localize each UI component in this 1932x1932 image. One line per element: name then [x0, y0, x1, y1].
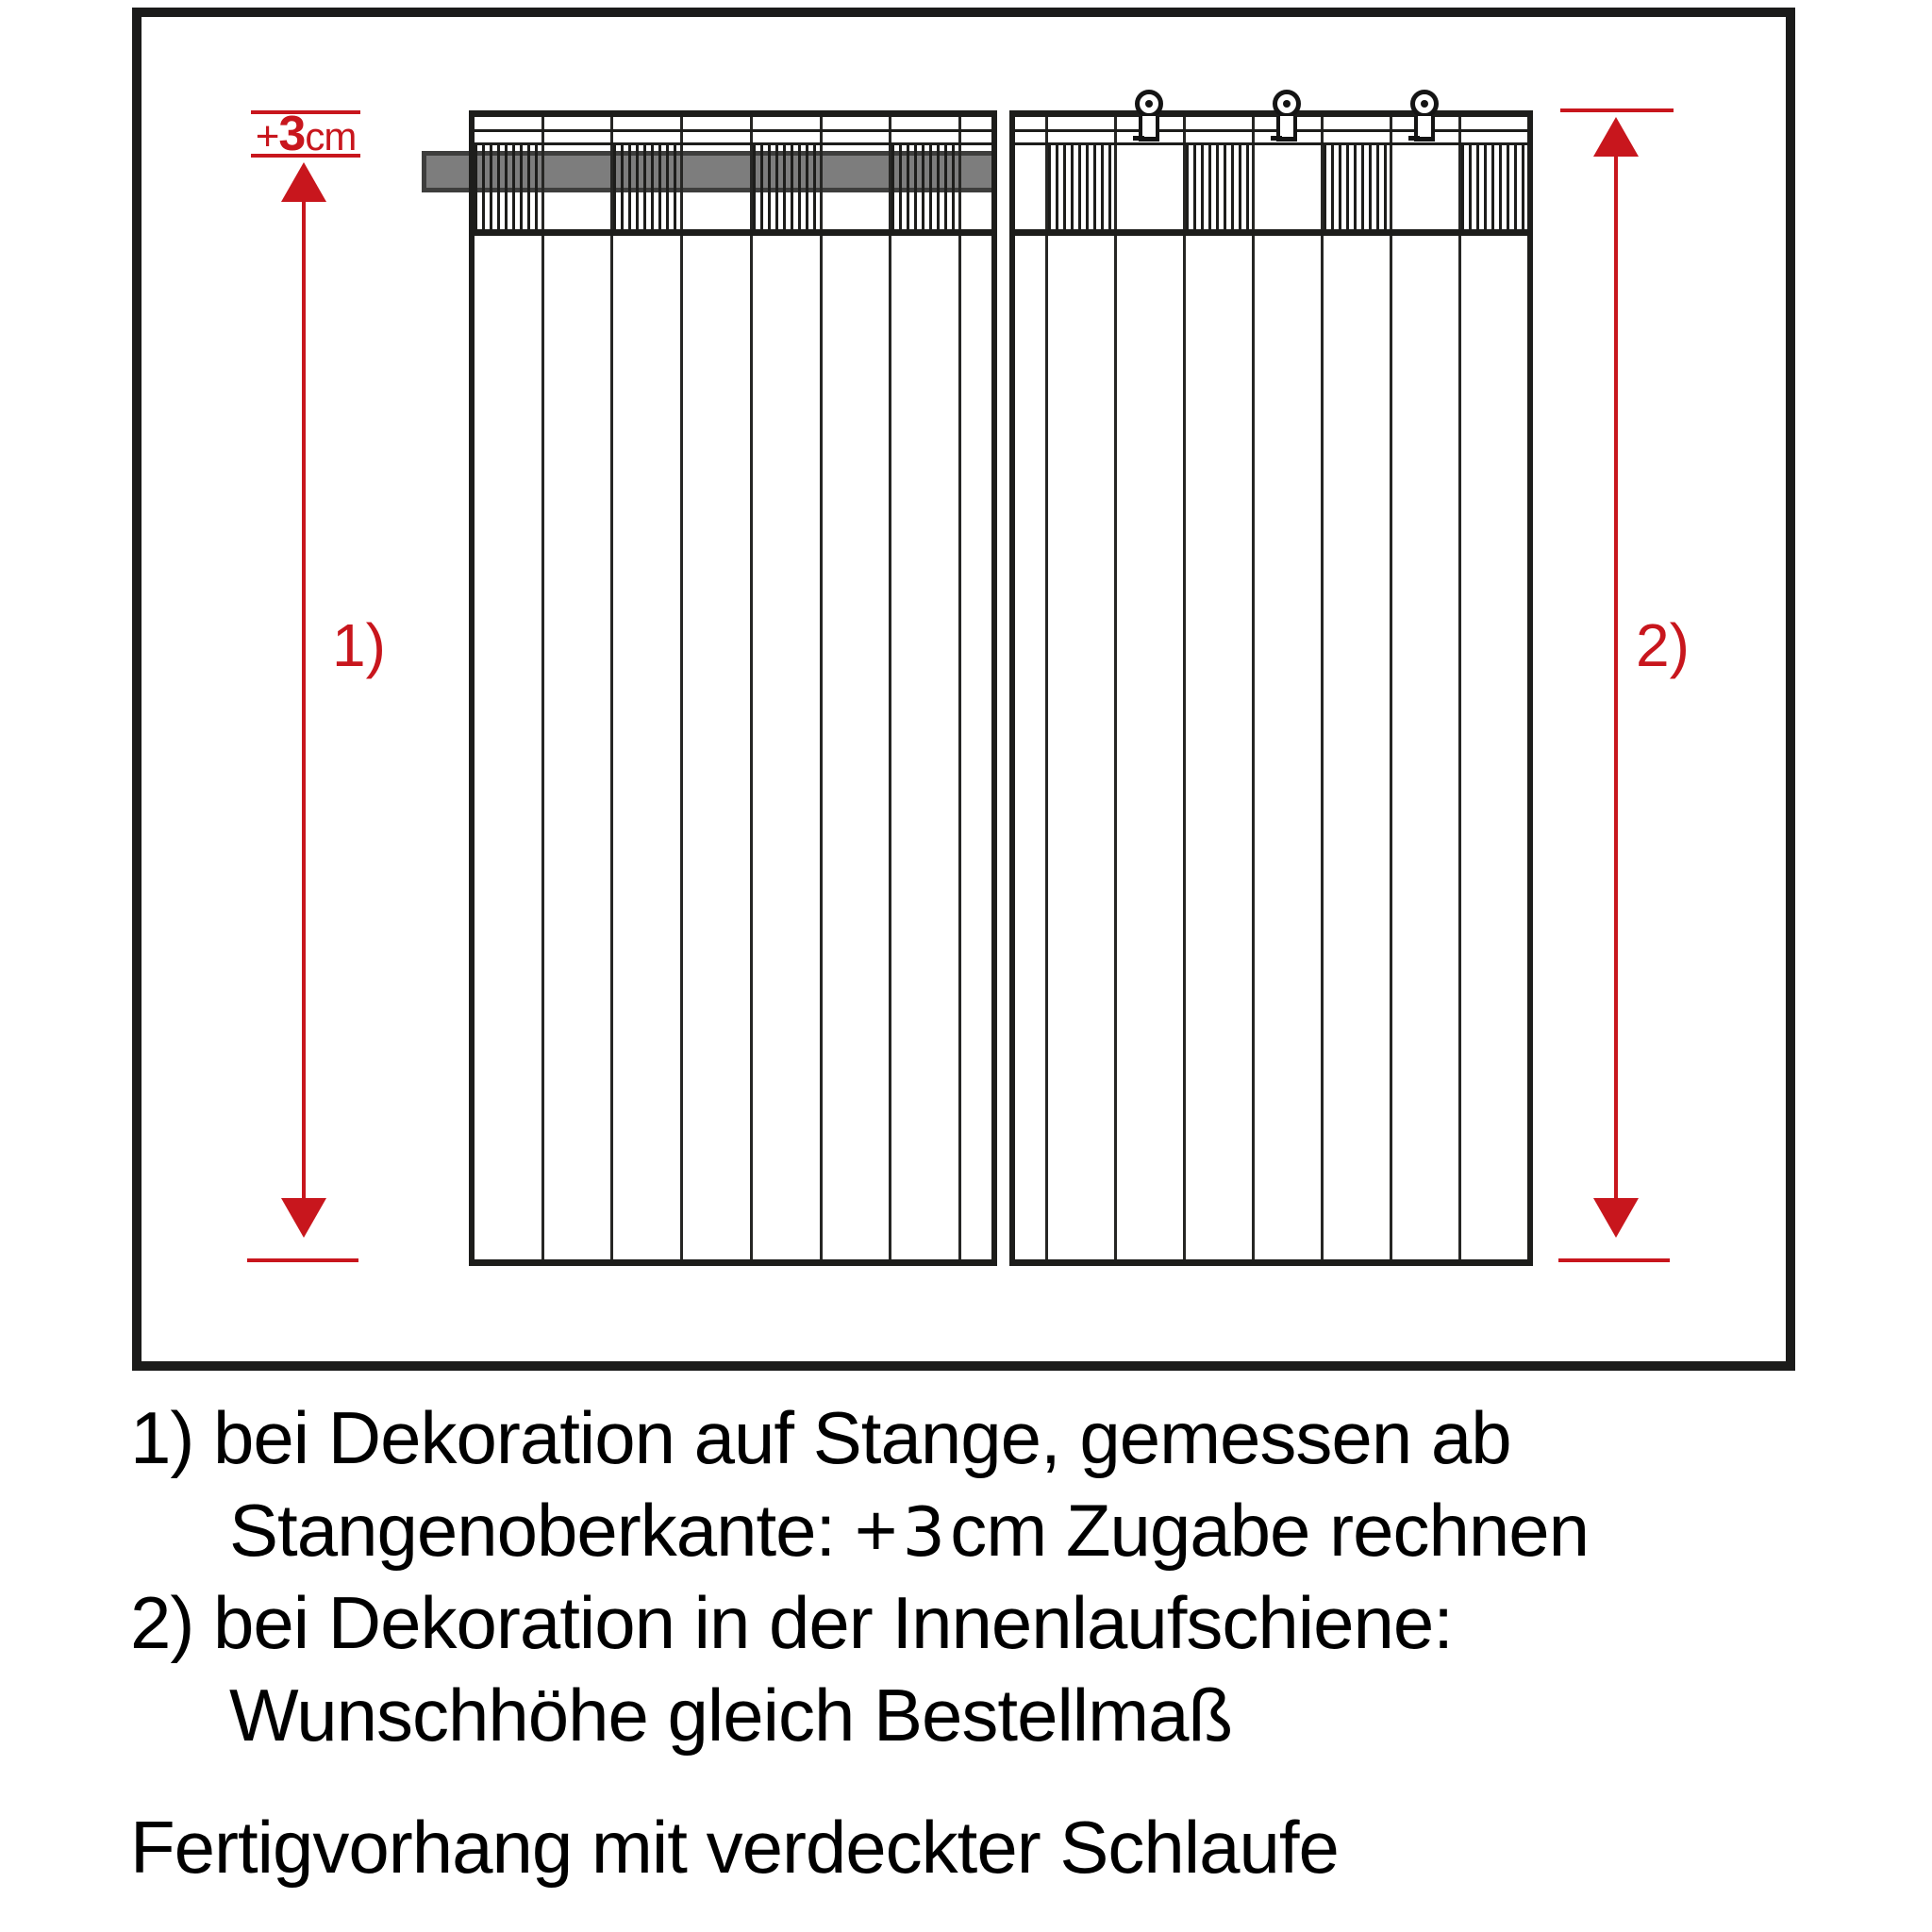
dimension-1-bottom-tick — [247, 1258, 358, 1262]
note-line-2: Stangenoberkante: +3cm Zugabe rechnen — [229, 1491, 1589, 1572]
note-line-2-value: 3 — [896, 1492, 950, 1572]
ring-hook-foot — [1408, 136, 1420, 141]
ring-eyelet-icon — [1410, 90, 1439, 118]
curtain-measurement-diagram: +3cm 1) 2) 1) bei Dekoration auf Stange,… — [0, 0, 1932, 1932]
fold-column-loop — [891, 117, 961, 1259]
rail-ring-icon — [1135, 90, 1163, 146]
fold-column-loop — [1324, 117, 1392, 1259]
allowance-unit: cm — [305, 114, 356, 158]
dimension-1-label: 1) — [332, 615, 386, 675]
fold-column-loop — [1048, 117, 1117, 1259]
fold-columns-left — [475, 117, 991, 1259]
allowance-bottom-tick — [251, 154, 360, 158]
fold-column-loop — [1186, 117, 1255, 1259]
ring-eyelet-icon — [1273, 90, 1301, 118]
allowance-plus: + — [256, 113, 279, 159]
dimension-2-top-tick — [1560, 108, 1674, 112]
fold-column — [544, 117, 614, 1259]
header-seam-line — [475, 129, 991, 132]
fold-column — [683, 117, 753, 1259]
arrow-down-head — [1593, 1198, 1639, 1238]
note-line-1: 1) bei Dekoration auf Stange, gemessen a… — [130, 1398, 1511, 1477]
fold-column-loop — [753, 117, 823, 1259]
footer-caption: Fertigvorhang mit verdeckter Schlaufe — [130, 1807, 1339, 1887]
dimension-2-bottom-tick — [1558, 1258, 1670, 1262]
fold-column — [1117, 117, 1186, 1259]
note-line-3: 2) bei Dekoration in der Innenlaufschien… — [130, 1583, 1453, 1662]
header-band-bottom-line — [1015, 229, 1527, 236]
header-seam-line — [1015, 142, 1527, 145]
hidden-loop-hatch — [1048, 144, 1114, 229]
fold-column-loop — [613, 117, 683, 1259]
header-band-bottom-line — [475, 229, 991, 236]
fold-column-loop — [475, 117, 544, 1259]
arrow-down-head — [281, 1198, 326, 1238]
dimension-2-label: 2) — [1636, 615, 1690, 675]
ring-eyelet-icon — [1135, 90, 1163, 118]
fold-column-loop — [1461, 117, 1527, 1259]
dimension-arrow-2 — [1614, 149, 1618, 1201]
header-seam-line — [475, 142, 991, 145]
hidden-loop-hatch — [475, 144, 541, 229]
fold-column — [961, 117, 991, 1259]
curtain-panel-left — [469, 110, 997, 1266]
note-line-4: Wunschhöhe gleich Bestellmaß — [229, 1675, 1232, 1755]
curtain-panel-right — [1009, 110, 1533, 1266]
note-line-2-pre: Stangenoberkante: + — [229, 1489, 896, 1572]
hidden-loop-hatch — [753, 144, 820, 229]
ring-hook-foot — [1271, 136, 1282, 141]
fold-columns-right — [1015, 117, 1527, 1259]
fold-column — [1015, 117, 1048, 1259]
allowance-label: +3cm — [243, 114, 368, 154]
rail-ring-icon — [1410, 90, 1439, 146]
note-line-2-post: cm Zugabe rechnen — [950, 1489, 1589, 1572]
hidden-loop-hatch — [613, 144, 680, 229]
fold-column — [1392, 117, 1461, 1259]
fold-column — [1255, 117, 1324, 1259]
header-seam-line — [1015, 129, 1527, 132]
hidden-loop-hatch — [891, 144, 958, 229]
hidden-loop-hatch — [1186, 144, 1252, 229]
ring-hook-foot — [1133, 136, 1144, 141]
hidden-loop-hatch — [1324, 144, 1390, 229]
fold-column — [823, 117, 892, 1259]
rail-ring-icon — [1273, 90, 1301, 146]
dimension-arrow-1 — [302, 193, 306, 1203]
hidden-loop-hatch — [1461, 144, 1527, 229]
